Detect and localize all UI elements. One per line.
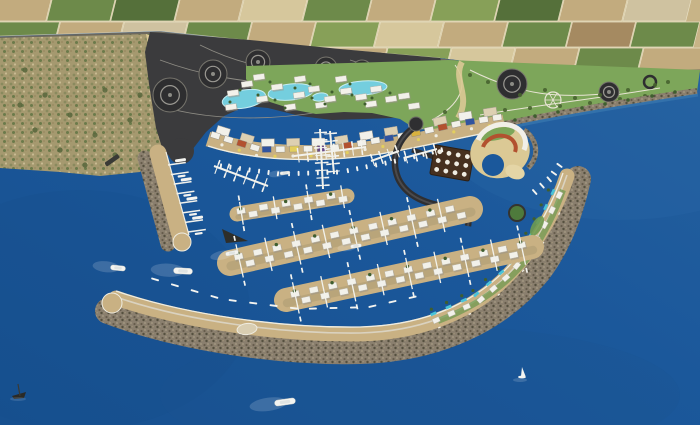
- park-tree: [666, 80, 670, 84]
- park-tree: [588, 101, 592, 105]
- resort-tree: [294, 87, 297, 90]
- island-tree: [330, 281, 333, 284]
- breakwater-west-end: [102, 293, 122, 313]
- waterfront-shop: [384, 135, 394, 142]
- berthed-boat: [314, 147, 319, 149]
- resort-tree: [284, 107, 287, 110]
- moored-boat: [350, 306, 358, 308]
- island-tree: [390, 217, 393, 220]
- island-tree: [428, 208, 431, 211]
- park-tree: [558, 104, 562, 108]
- moored-boat: [317, 170, 319, 175]
- island-villa: [293, 203, 302, 210]
- villa-tree: [547, 188, 550, 191]
- farm-field-patch: [175, 0, 244, 21]
- scrub-vegetation: [102, 87, 107, 92]
- villa-tree: [540, 203, 543, 206]
- shore-tree: [626, 98, 630, 102]
- farm-field-patch: [438, 22, 507, 47]
- park-tree: [518, 93, 522, 97]
- resort-building: [385, 96, 397, 103]
- farm-field-patch: [566, 22, 635, 47]
- promenade-umbrella: [273, 155, 276, 158]
- farm-field-patch: [374, 22, 443, 47]
- scrub-vegetation: [42, 92, 47, 97]
- shore-tree: [533, 114, 537, 118]
- island-villa: [316, 199, 325, 206]
- finger-pier: [324, 134, 330, 135]
- farm-field-patch: [630, 22, 699, 47]
- farm-field-patch: [310, 22, 379, 47]
- moored-boat: [336, 170, 338, 175]
- park-tree: [468, 73, 472, 77]
- park-tree: [598, 93, 602, 97]
- promenade-umbrella: [255, 154, 258, 157]
- resort-tree: [364, 103, 367, 106]
- waterfront-hotel-block: [261, 139, 274, 147]
- park-tree: [443, 110, 447, 114]
- farm-field-patch: [303, 0, 372, 21]
- berthed-boat: [325, 184, 330, 186]
- island-tree: [284, 200, 287, 203]
- island-tree: [481, 249, 484, 252]
- resort-tree: [371, 97, 374, 100]
- resort-building: [308, 86, 320, 93]
- parking-hub: [256, 60, 260, 64]
- parking-hub: [168, 93, 172, 97]
- villa-tree: [471, 289, 474, 292]
- farm-field-patch: [111, 0, 180, 21]
- villa-tree: [460, 294, 463, 297]
- event-platform: [430, 145, 475, 181]
- farm-field-patch: [47, 0, 116, 21]
- villa-tree: [430, 308, 433, 311]
- scrub-vegetation: [127, 117, 132, 122]
- shore-tree: [650, 94, 654, 98]
- promenade-umbrella: [238, 149, 241, 152]
- farm-field-patch: [559, 0, 628, 21]
- resort-tree: [274, 99, 277, 102]
- island-villa: [259, 204, 268, 211]
- promenade-umbrella: [452, 130, 455, 133]
- resort-building: [335, 76, 347, 83]
- island-tree: [275, 243, 278, 246]
- shore-tree: [673, 90, 677, 94]
- waterfront-hotel-block: [287, 138, 300, 146]
- yacht-superstructure: [178, 269, 188, 273]
- resort-building: [370, 86, 382, 93]
- park-tree: [626, 88, 630, 92]
- scene-canvas: [0, 0, 700, 425]
- scrub-vegetation: [67, 112, 72, 117]
- parking-hub: [510, 82, 514, 86]
- roundabout: [409, 117, 423, 131]
- resort-building: [294, 76, 306, 83]
- moored-boat: [298, 171, 300, 176]
- island-tree: [368, 273, 371, 276]
- farm-field-patch: [367, 0, 436, 21]
- resort-building: [256, 96, 268, 103]
- resort-building: [241, 81, 253, 88]
- resort-building: [271, 84, 283, 91]
- floating-deck: [430, 145, 475, 181]
- scrub-vegetation: [92, 132, 97, 137]
- berthed-boat: [315, 162, 320, 164]
- park-tree: [528, 106, 532, 110]
- park-tree: [543, 88, 547, 92]
- promenade-umbrella: [363, 148, 366, 151]
- round-garden: [509, 205, 525, 221]
- waterfront-shop: [370, 137, 380, 144]
- park-tree: [503, 108, 507, 112]
- resort-building: [355, 94, 367, 101]
- resort-tree: [389, 92, 392, 95]
- park-tree: [486, 80, 490, 84]
- resort-tree: [331, 91, 334, 94]
- promenade-umbrella: [435, 134, 438, 137]
- resort-building: [225, 104, 237, 111]
- scrub-vegetation: [137, 92, 142, 97]
- waterfront-shop: [262, 146, 271, 152]
- berthed-boat: [325, 177, 330, 179]
- resort-building: [398, 93, 410, 100]
- farm-field-patch: [431, 0, 500, 21]
- resort-building: [227, 90, 239, 97]
- resort-building: [365, 101, 377, 108]
- farm-field-patch: [502, 22, 571, 47]
- resort-tree: [351, 94, 354, 97]
- island-villa: [248, 210, 257, 217]
- resort-tree: [269, 81, 272, 84]
- park-tree: [653, 83, 657, 87]
- finger-pier: [332, 148, 338, 149]
- promenade-umbrella: [220, 143, 223, 146]
- berthed-boat: [314, 139, 319, 141]
- park-tree: [573, 96, 577, 100]
- waterfront-shop: [276, 146, 285, 152]
- shore-tree: [580, 106, 584, 110]
- parking-hub: [211, 72, 215, 76]
- berthed-boat: [322, 131, 327, 133]
- resort-building: [408, 103, 420, 110]
- boat-wake: [10, 397, 26, 401]
- promenade-umbrella: [346, 151, 349, 154]
- resort-tree: [349, 83, 352, 86]
- inner-cove: [482, 154, 504, 176]
- farm-field-patch: [0, 0, 52, 21]
- moored-boat: [307, 171, 309, 176]
- resort-tree: [239, 89, 242, 92]
- farm-field-patch: [495, 0, 564, 21]
- resort-building: [293, 92, 305, 99]
- promenade-umbrella: [381, 145, 384, 148]
- waterfront-shop: [303, 146, 312, 152]
- resort-tree: [229, 101, 232, 104]
- villa-tree: [484, 278, 487, 281]
- waterfront-shop: [492, 114, 502, 121]
- quay-round-end: [173, 233, 191, 251]
- promenade-umbrella: [470, 127, 473, 130]
- promenade-umbrella: [417, 138, 420, 141]
- resort-tree: [257, 94, 260, 97]
- waterfront-shop: [479, 116, 489, 123]
- waterfront-shop: [465, 118, 475, 125]
- resort-tree: [311, 97, 314, 100]
- berthed-boat: [324, 162, 329, 164]
- scrub-vegetation: [22, 67, 27, 72]
- moored-boat: [309, 308, 317, 310]
- scrub-vegetation: [32, 127, 37, 132]
- berthed-boat: [316, 185, 321, 187]
- farm-field-patch: [239, 0, 308, 21]
- finger-pier: [326, 156, 332, 157]
- island-tree: [444, 257, 447, 260]
- moored-boat: [329, 307, 337, 309]
- farm-field-patch: [623, 0, 692, 21]
- shore-tree: [513, 118, 517, 122]
- parking-hub: [607, 90, 611, 94]
- scrub-vegetation: [57, 147, 62, 152]
- resort-building: [340, 88, 352, 95]
- island-tree: [313, 234, 316, 237]
- berthed-boat: [323, 139, 328, 141]
- marina-masterplan-render: [0, 0, 700, 425]
- shore-tree: [603, 102, 607, 106]
- resort-building: [253, 74, 265, 81]
- villa-tree: [445, 301, 448, 304]
- island-tree: [329, 192, 332, 195]
- shore-tree: [556, 110, 560, 114]
- sailboat-hull: [518, 376, 526, 379]
- resort-tree: [324, 103, 327, 106]
- scrub-vegetation: [82, 162, 87, 167]
- villa-tree: [524, 232, 527, 235]
- resort-tree: [309, 83, 312, 86]
- boat-wake: [513, 378, 527, 382]
- moored-boat: [326, 170, 328, 175]
- scrub-vegetation: [17, 102, 22, 107]
